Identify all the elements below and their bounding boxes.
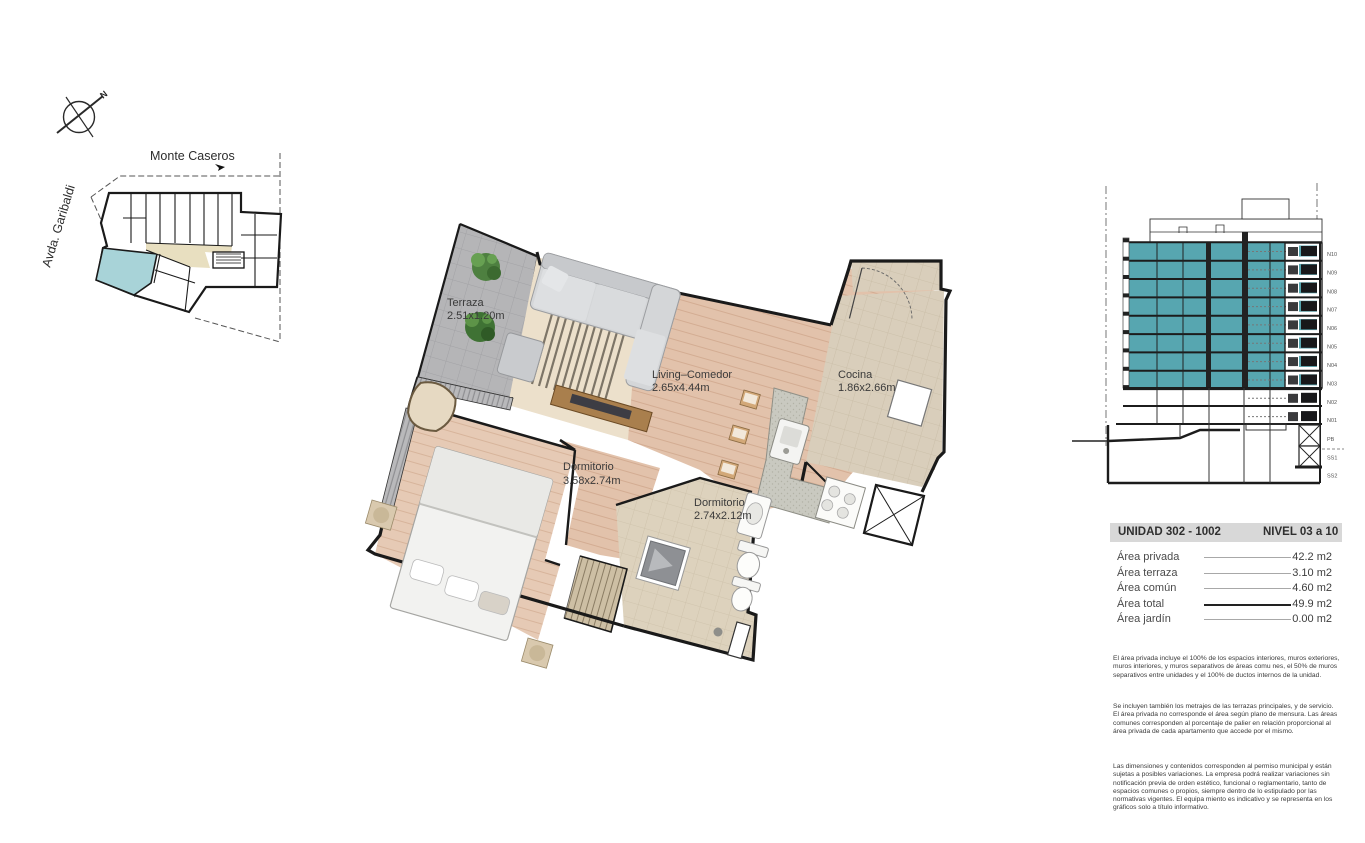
svg-text:Avda. Garibaldi: Avda. Garibaldi <box>39 183 77 269</box>
svg-text:Monte Caseros: Monte Caseros <box>150 149 235 163</box>
svg-text:Cocina: Cocina <box>838 369 873 381</box>
svg-text:N03: N03 <box>1327 381 1337 387</box>
svg-text:N01: N01 <box>1327 418 1337 424</box>
svg-text:Dormitorio: Dormitorio <box>694 497 745 509</box>
svg-text:Terraza: Terraza <box>447 297 485 309</box>
svg-text:2.74x2.12m: 2.74x2.12m <box>694 510 751 522</box>
svg-text:N08: N08 <box>1327 289 1337 295</box>
svg-text:PB: PB <box>1327 437 1335 443</box>
svg-text:N02: N02 <box>1327 400 1337 406</box>
svg-text:SS1: SS1 <box>1327 455 1337 461</box>
svg-text:N06: N06 <box>1327 326 1337 332</box>
svg-text:N09: N09 <box>1327 271 1337 277</box>
svg-text:1.86x2.66m: 1.86x2.66m <box>838 382 895 394</box>
svg-text:3.58x2.74m: 3.58x2.74m <box>563 475 620 487</box>
svg-text:N05: N05 <box>1327 345 1337 351</box>
svg-text:Living–Comedor: Living–Comedor <box>652 369 732 381</box>
svg-text:2.65x4.44m: 2.65x4.44m <box>652 382 709 394</box>
svg-text:N07: N07 <box>1327 308 1337 314</box>
svg-text:Dormitorio: Dormitorio <box>563 461 614 473</box>
svg-text:2.51x1.20m: 2.51x1.20m <box>447 310 504 322</box>
svg-text:N04: N04 <box>1327 363 1337 369</box>
svg-text:SS2: SS2 <box>1327 474 1337 480</box>
svg-text:N10: N10 <box>1327 252 1337 258</box>
